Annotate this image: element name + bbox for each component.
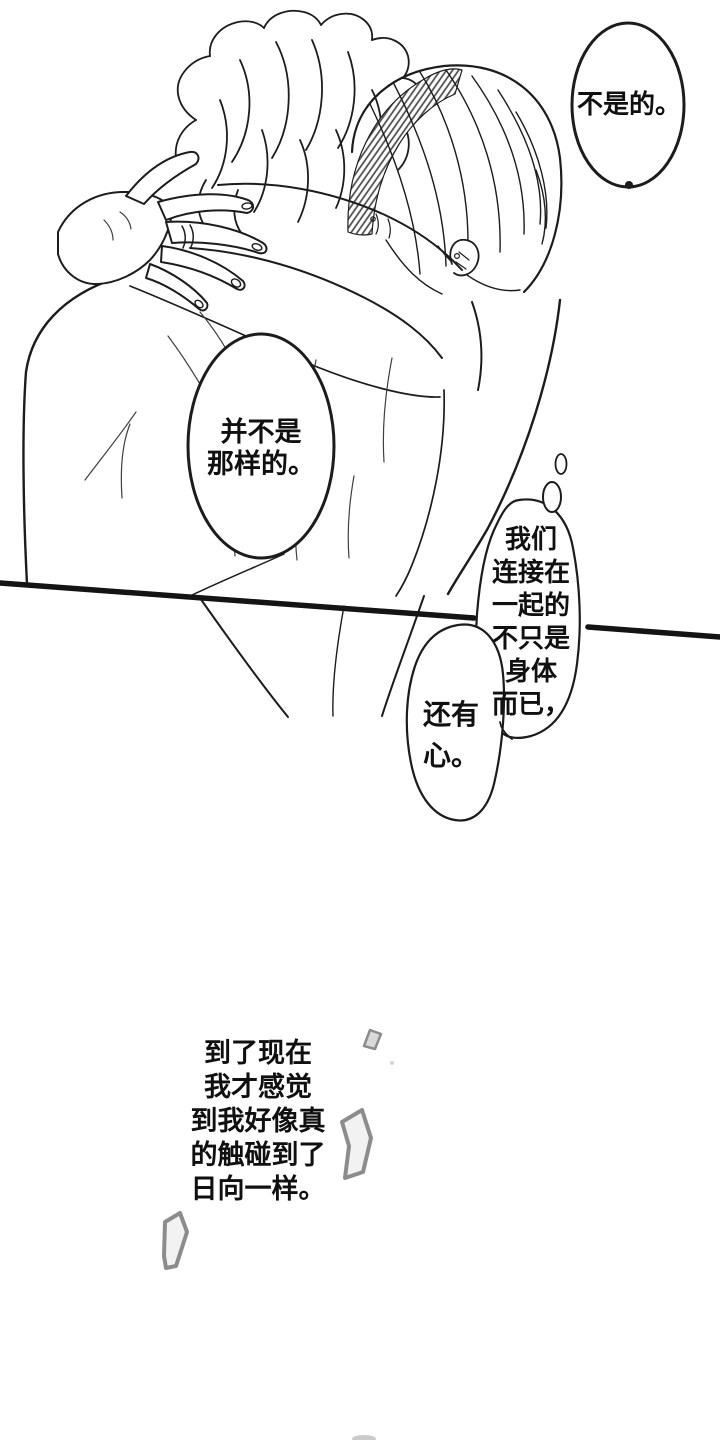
speech-bubble-clarify-text: 并不是 那样的。 [181, 416, 341, 480]
text-line: 那样的。 [181, 448, 341, 480]
narration-text: 到了现在 我才感觉 到我好像真 的触碰到了 日向一样。 [177, 1036, 339, 1206]
hair-tone-band [348, 69, 462, 235]
manga-artwork [0, 0, 720, 1440]
text-line: 到我好像真 [177, 1104, 339, 1138]
sparkle-mid [342, 1110, 371, 1178]
text-line: 一起的 [461, 589, 601, 622]
sparkle-small [364, 1030, 381, 1049]
thought-trail-large [543, 482, 561, 512]
sparkle-low [164, 1213, 187, 1268]
fingernails [194, 202, 263, 309]
text-line: 身体 [461, 655, 601, 688]
text-line: 还有 [405, 694, 497, 735]
bed-edge-line [0, 583, 720, 637]
bubble-tail-dot [625, 181, 633, 189]
text-line: 的触碰到了 [177, 1138, 339, 1172]
character-right-head [348, 65, 561, 294]
text-line: 心。 [405, 735, 497, 776]
text-line: 日向一样。 [177, 1172, 339, 1206]
thought-trail-small [556, 454, 567, 474]
thought-bubble-secondary-text: 还有 心。 [405, 694, 497, 776]
text-line: 连接在 [461, 556, 601, 589]
text-line: 我才感觉 [177, 1070, 339, 1104]
text-line: 不只是 [461, 622, 601, 655]
text-line: 到了现在 [177, 1036, 339, 1070]
text-line: 并不是 [181, 416, 341, 448]
speech-bubble-denial-text: 不是的。 [570, 88, 688, 120]
hand-on-shoulder [58, 152, 266, 311]
thought-bubble-main-text: 我们 连接在 一起的 不只是 身体 而已， [461, 523, 601, 721]
text-line: 我们 [461, 523, 601, 556]
manga-page: 不是的。 并不是 那样的。 我们 连接在 一起的 不只是 身体 而已， 还有 心… [0, 0, 720, 1440]
sparkle-bottom-edge [352, 1435, 376, 1440]
